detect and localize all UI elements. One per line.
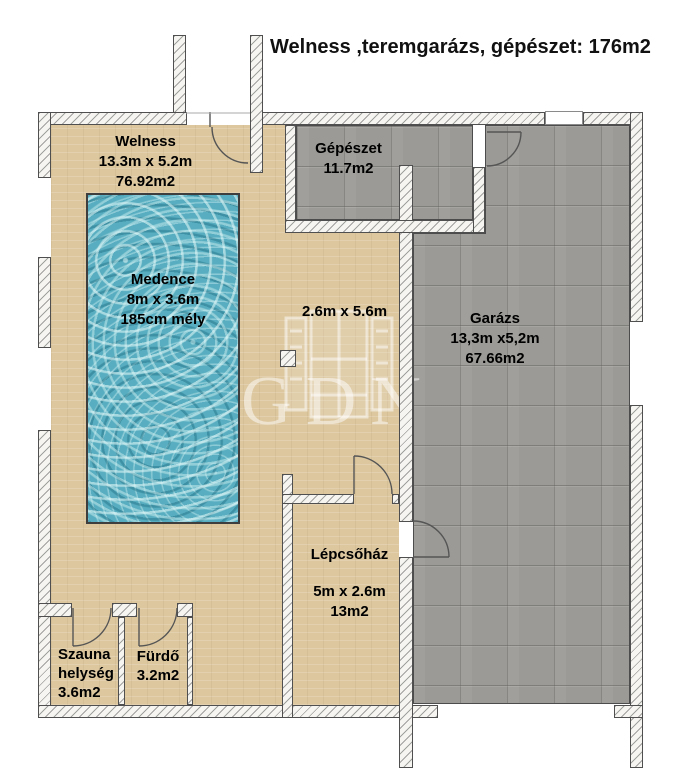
- garage-dimensions: 13,3m x5,2m: [415, 329, 575, 349]
- welness-dimensions: 13.3m x 5.2m: [53, 152, 238, 172]
- floor-plan: Welness ,teremgarázs, gépészet: 176m2 GD…: [0, 0, 682, 768]
- wall-top-left: [38, 112, 187, 125]
- wall-left-lower: [38, 430, 51, 718]
- gepeszet-area: 11.7m2: [291, 159, 406, 179]
- gepeszet-south-wall: [285, 220, 485, 233]
- garage-west-wall-upper: [399, 165, 413, 522]
- gepeszet-east-wall: [473, 167, 485, 233]
- staircase-area: 13m2: [296, 602, 403, 622]
- sauna-label: Szauna helység 3.6m2: [58, 645, 124, 702]
- pool-dimensions: 8m x 3.6m: [93, 290, 233, 310]
- wall-top-middle: [250, 112, 545, 125]
- gepeszet-label: Gépészet 11.7m2: [291, 139, 406, 179]
- wall-bottom-left: [38, 705, 438, 718]
- window-top: [545, 111, 583, 125]
- bath-name: Fürdő: [126, 647, 190, 666]
- plan-title: Welness ,teremgarázs, gépészet: 176m2: [270, 36, 651, 59]
- pool: [86, 193, 240, 524]
- welness-label: Welness 13.3m x 5.2m 76.92m2: [53, 132, 238, 192]
- staircase-north-wall-right: [392, 494, 399, 504]
- pool-label: Medence 8m x 3.6m 185cm mély: [93, 270, 233, 330]
- corridor-label: 2.6m x 5.6m: [282, 302, 407, 322]
- staircase-name: Lépcsőház: [296, 545, 403, 565]
- welness-area: 76.92m2: [53, 172, 238, 192]
- garage-label: Garázs 13,3m x5,2m 67.66m2: [415, 309, 575, 369]
- staircase-west-wall: [282, 474, 293, 718]
- entry-pier-right: [250, 35, 263, 173]
- wall-left-middle: [38, 257, 51, 348]
- garage-name: Garázs: [415, 309, 575, 329]
- bath-area: 3.2m2: [126, 666, 190, 685]
- sauna-area: 3.6m2: [58, 683, 124, 702]
- staircase-dimensions: 5m x 2.6m: [296, 582, 403, 602]
- wall-right-upper: [630, 112, 643, 322]
- staircase-label: Lépcsőház 5m x 2.6m 13m2: [296, 545, 403, 622]
- staircase-north-wall-left: [282, 494, 354, 504]
- sauna-north-wall-b: [112, 603, 137, 617]
- sauna-name: Szauna helység: [58, 645, 124, 683]
- corridor-dimensions: 2.6m x 5.6m: [282, 302, 407, 322]
- sauna-north-wall-a: [38, 603, 72, 617]
- pool-depth: 185cm mély: [93, 310, 233, 330]
- welness-name: Welness: [53, 132, 238, 152]
- pillar: [280, 350, 296, 367]
- gepeszet-name: Gépészet: [291, 139, 406, 159]
- wall-bottom-right: [614, 705, 643, 718]
- entry-stub-left: [173, 35, 186, 113]
- bath-label: Fürdő 3.2m2: [126, 647, 190, 685]
- pool-name: Medence: [93, 270, 233, 290]
- garage-area: 67.66m2: [415, 349, 575, 369]
- sauna-north-wall-c: [177, 603, 193, 617]
- wall-left-upper: [38, 112, 51, 178]
